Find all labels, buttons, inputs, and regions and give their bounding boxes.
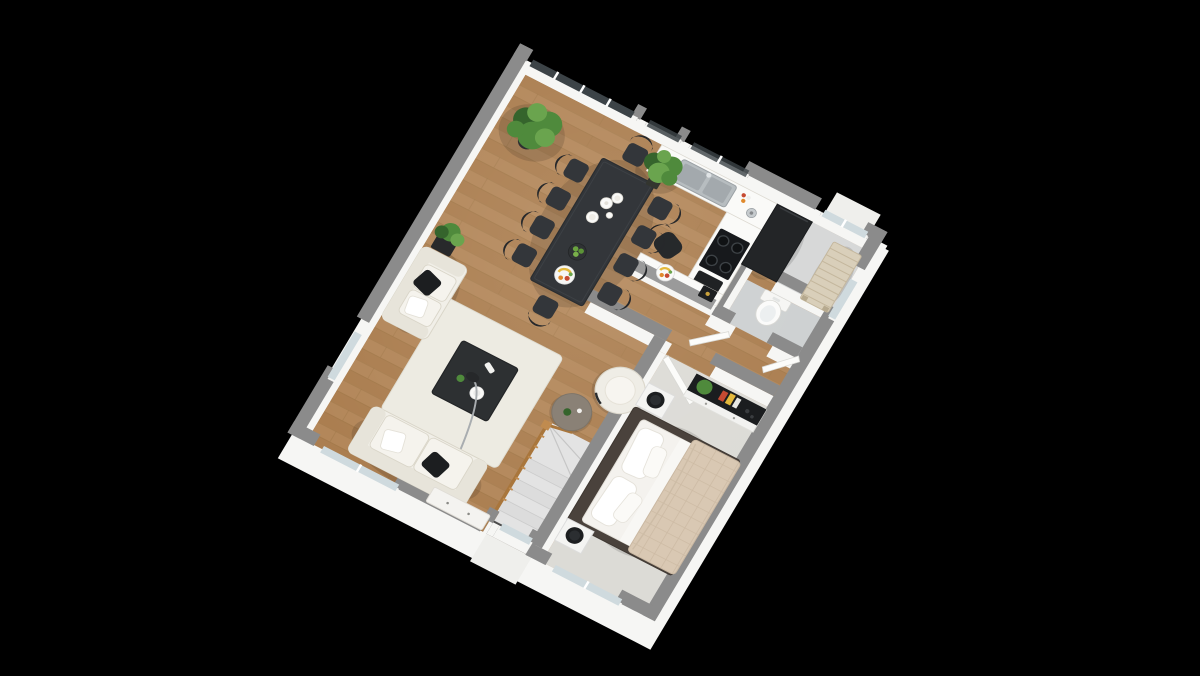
floor-plan-render: 3D isometric floor plan rendering of a o… [0,0,1200,676]
screenshot-root: 3D isometric floor plan rendering of a o… [0,0,1200,676]
scene-projection [271,33,903,653]
